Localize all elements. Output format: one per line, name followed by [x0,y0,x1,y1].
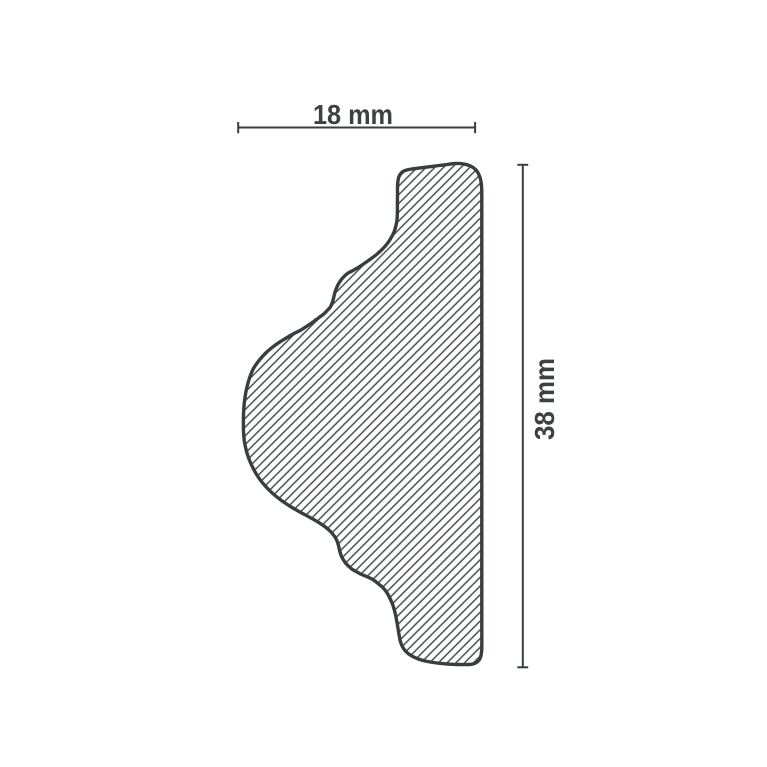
svg-text:38 mm: 38 mm [529,358,560,440]
svg-text:18 mm: 18 mm [313,99,393,130]
